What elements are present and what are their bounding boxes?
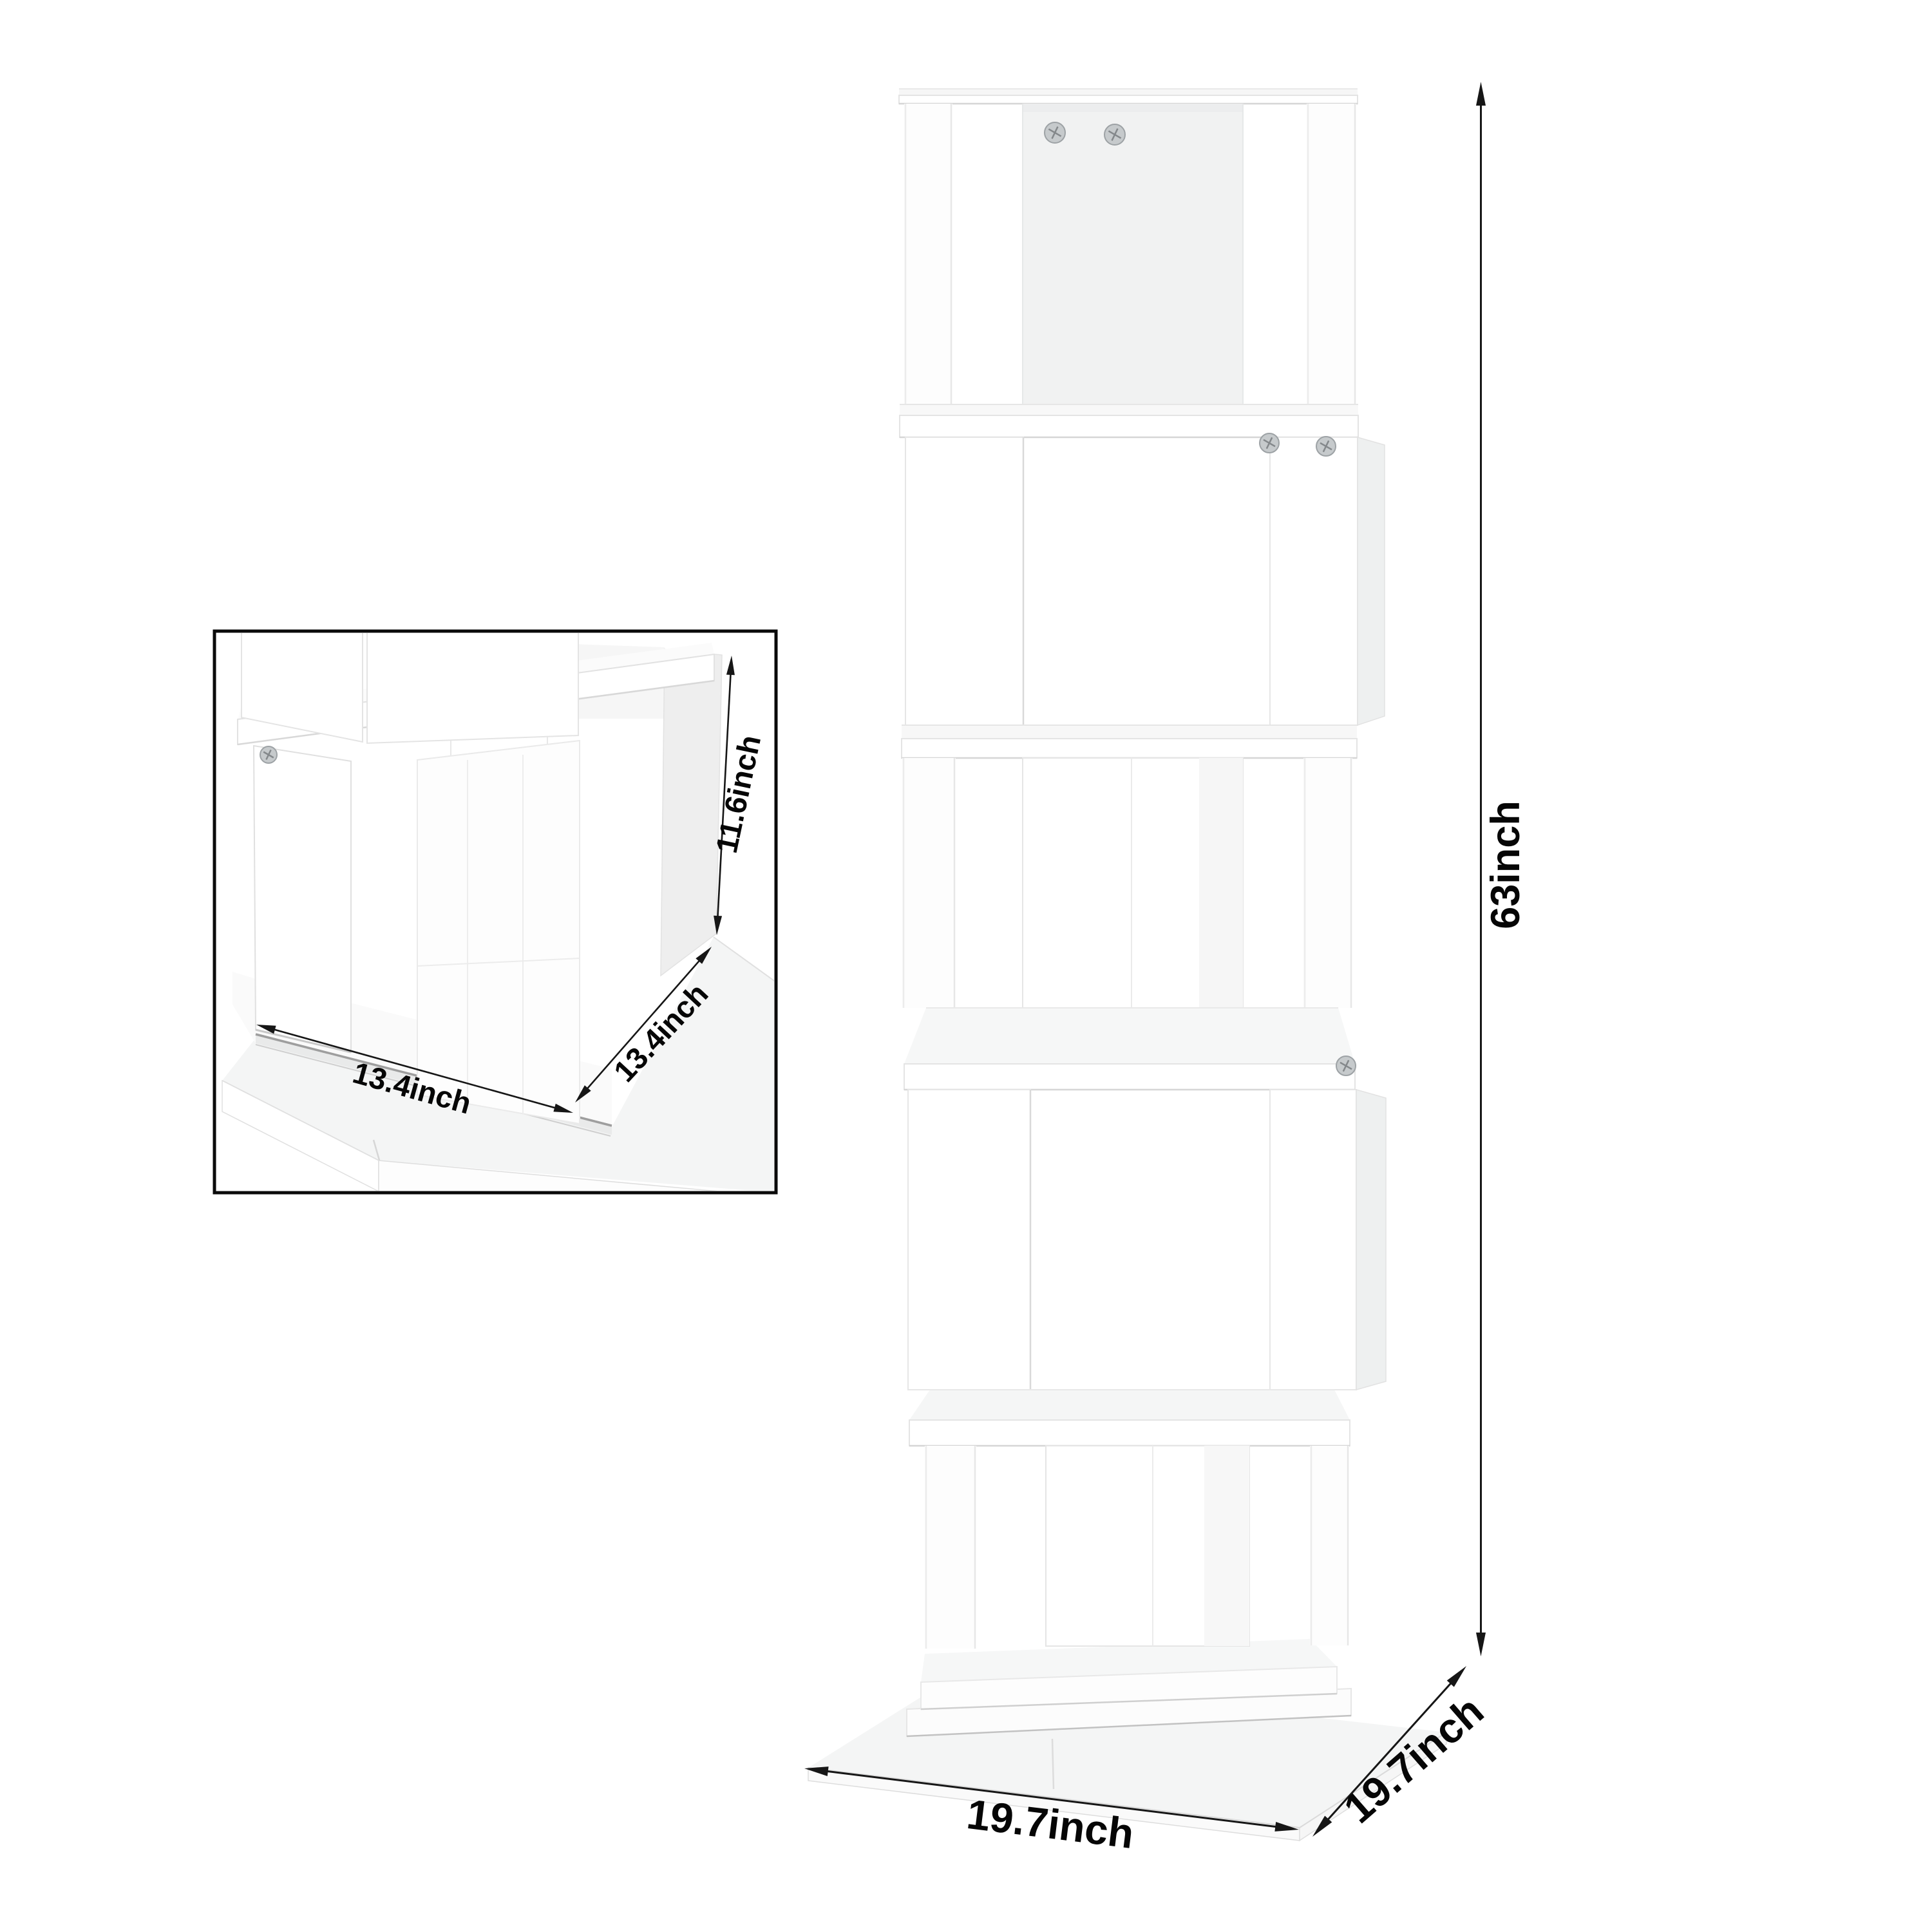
svg-text:63inch: 63inch	[1483, 800, 1528, 929]
